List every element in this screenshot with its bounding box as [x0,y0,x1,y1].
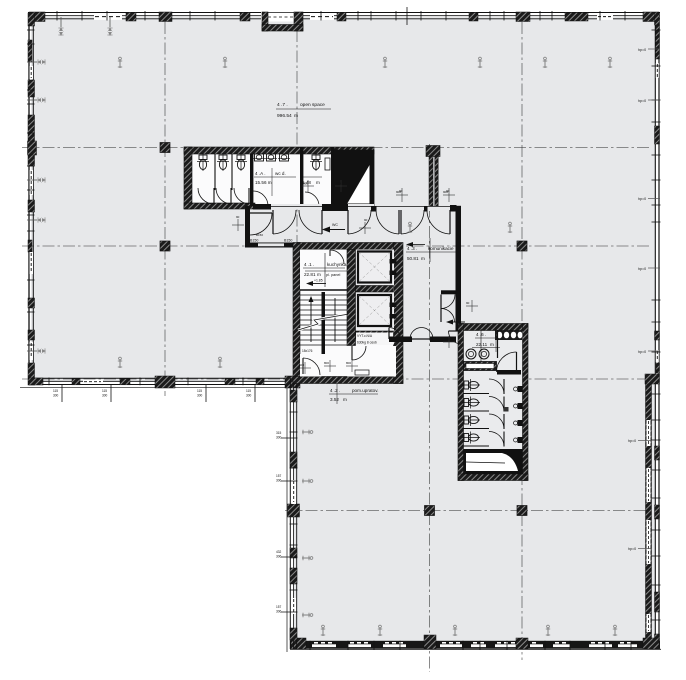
svg-text:90/20: 90/20 [445,337,453,341]
svg-text:115: 115 [197,389,202,393]
svg-text:115: 115 [246,389,251,393]
svg-text:800: 800 [324,361,329,365]
svg-text:komunikacie: komunikacie [428,246,454,251]
svg-text:90: 90 [446,189,450,193]
svg-text:996.54: 996.54 [277,113,292,119]
svg-text:B150: B150 [256,233,263,237]
svg-text:306: 306 [276,479,282,483]
svg-text:800: 800 [303,182,308,186]
svg-text:4 .3 .: 4 .3 . [407,246,417,251]
svg-text:300: 300 [197,394,203,398]
svg-text:800: 800 [346,361,351,365]
svg-text:315: 315 [276,431,282,435]
svg-text:432: 432 [276,550,282,554]
svg-text:90: 90 [399,189,403,193]
svg-text:300: 300 [246,394,252,398]
svg-text:B150: B150 [284,239,292,243]
svg-text:4 .1 .: 4 .1 . [304,262,314,267]
svg-text:90: 90 [466,301,470,305]
svg-text:15.56 m: 15.56 m [255,180,272,185]
svg-text:115: 115 [102,389,107,393]
svg-text:hp=0: hp=0 [628,547,636,551]
svg-text:90: 90 [236,215,240,219]
svg-text:+1.85: +1.85 [314,279,323,283]
svg-text:22.11: 22.11 [476,342,488,347]
svg-text:WC: WC [332,223,338,227]
svg-text:22.81: 22.81 [304,272,316,277]
svg-text:157: 157 [276,474,282,478]
svg-text:800: 800 [336,182,341,186]
svg-text:wc d.: wc d. [275,171,286,176]
svg-text:pl. panel: pl. panel [326,273,341,277]
svg-text:hp=0: hp=0 [638,197,646,201]
svg-text:4 .2 .: 4 .2 . [330,388,340,393]
svg-text:hp=0: hp=0 [638,350,646,354]
svg-text:hp=0: hp=0 [638,99,646,103]
svg-text:90: 90 [364,218,368,222]
svg-text:18x176: 18x176 [302,349,313,353]
svg-text:B150: B150 [250,239,258,243]
svg-text:630kg 8 osob: 630kg 8 osob [357,341,377,345]
svg-text:300: 300 [53,394,59,398]
svg-text:open space: open space [300,103,325,108]
svg-text:pom.upratov.: pom.upratov. [352,388,378,393]
svg-text:m: m [316,180,320,185]
svg-text:3.52: 3.52 [330,397,339,402]
svg-text:306: 306 [276,610,282,614]
svg-text:hp=0: hp=0 [638,267,646,271]
svg-text:50.81: 50.81 [407,256,419,261]
svg-text:157: 157 [276,605,282,609]
svg-text:600: 600 [299,363,304,367]
svg-text:m: m [421,256,425,261]
svg-text:m: m [294,114,298,119]
svg-text:4 .7 .: 4 .7 . [277,102,288,108]
svg-text:hp=0: hp=0 [628,439,636,443]
svg-text:306: 306 [276,555,282,559]
svg-text:m: m [343,397,347,402]
svg-text:300: 300 [102,394,108,398]
svg-text:hp=0: hp=0 [638,48,646,52]
svg-text:115: 115 [53,389,58,393]
svg-text:300: 300 [276,436,282,440]
svg-text:4 .A .: 4 .A . [255,171,265,176]
svg-text:m: m [490,342,494,347]
svg-text:VYT.c.N/A: VYT.c.N/A [357,334,373,338]
svg-text:m: m [317,272,321,277]
